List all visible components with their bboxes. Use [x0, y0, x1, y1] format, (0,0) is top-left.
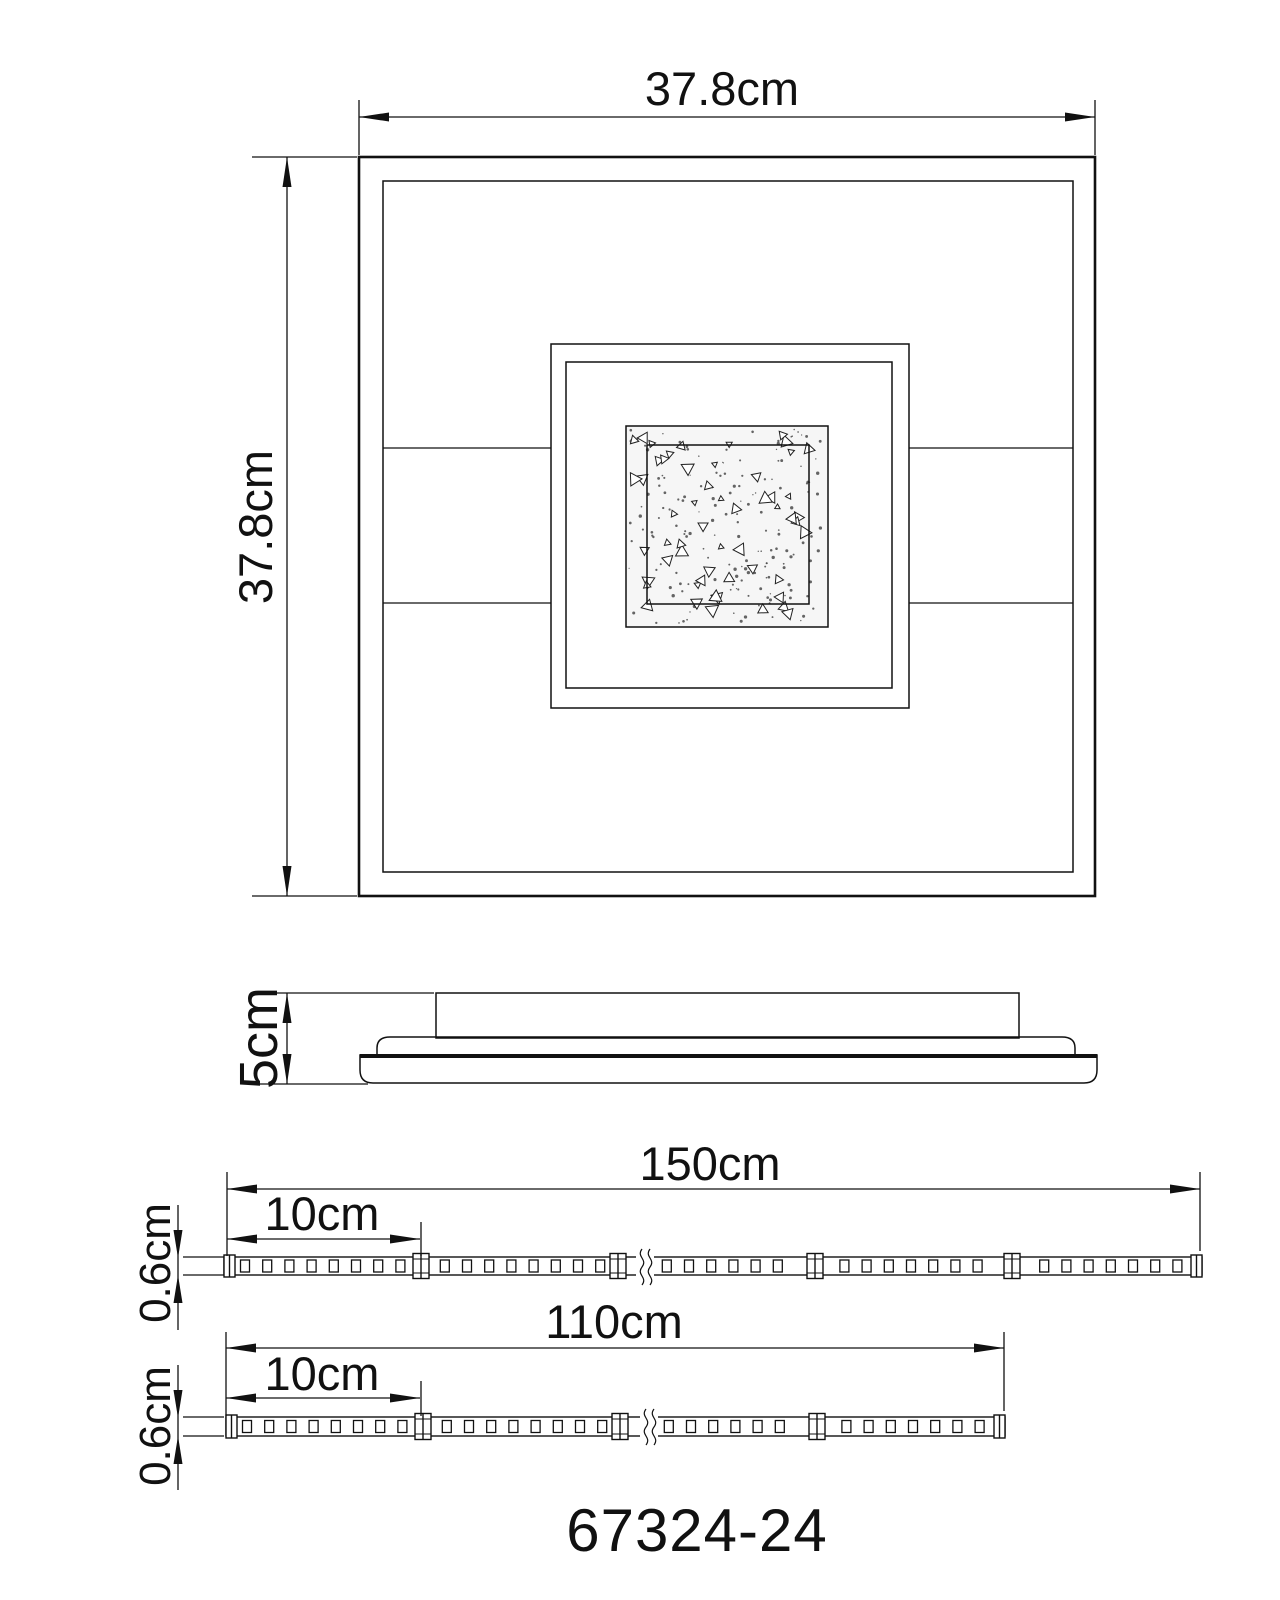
speckle-dot: [817, 549, 820, 552]
speckle-dot: [800, 620, 801, 621]
speckle-dot: [683, 533, 685, 535]
led-square: [265, 1421, 274, 1433]
speckle-dot: [639, 514, 642, 517]
speckle-dot: [739, 459, 741, 461]
speckle-dot: [713, 578, 716, 581]
speckle-dot: [793, 429, 795, 431]
led-square: [485, 1260, 494, 1272]
speckle-dot: [759, 587, 762, 590]
speckle-dot: [723, 462, 724, 463]
speckle-dot: [737, 535, 740, 538]
led-square: [729, 1260, 738, 1272]
speckle-dot: [806, 595, 808, 597]
speckle-dot: [672, 594, 675, 597]
speckle-dot: [765, 530, 767, 532]
led-square: [864, 1421, 873, 1433]
dim-strip1-thickness: 0.6cm: [131, 1203, 224, 1330]
led-square: [553, 1421, 562, 1433]
speckle-dot: [819, 526, 822, 529]
speckle-dot: [740, 501, 741, 502]
arrowhead-right: [1065, 113, 1095, 122]
speckle-dot: [644, 445, 646, 447]
speckle-dot: [714, 534, 716, 536]
speckle-dot: [658, 517, 660, 519]
model-number: 67324-24: [566, 1497, 828, 1564]
speckle-dot: [770, 549, 773, 552]
speckle-dot: [651, 535, 653, 537]
speckle-dot: [630, 429, 633, 432]
dim-strip1-segment: 10cm: [227, 1187, 421, 1256]
speckle-dot: [760, 550, 762, 552]
led-strip-150: [224, 1249, 1202, 1285]
dim-strip2-thickness: 0.6cm: [131, 1365, 224, 1490]
speckle-dot: [642, 529, 644, 531]
speckle-dot: [740, 620, 743, 623]
speckle-dot: [715, 472, 717, 474]
speckle-dot: [631, 540, 633, 542]
speckle-dot: [797, 431, 799, 433]
speckle-dot: [766, 562, 768, 564]
speckle-dot: [651, 531, 654, 534]
led-square: [243, 1421, 252, 1433]
speckle-dot: [758, 605, 760, 607]
arrowhead-left: [227, 1235, 257, 1244]
led-square: [707, 1260, 716, 1272]
speckle-dot: [793, 554, 795, 556]
led-square: [331, 1421, 340, 1433]
led-square: [775, 1421, 784, 1433]
speckle-dot: [679, 582, 682, 585]
speckle-dot: [768, 576, 771, 579]
speckle-dot: [802, 615, 805, 618]
speckle-dot: [777, 533, 780, 536]
led-square: [1084, 1260, 1093, 1272]
speckle-dot: [790, 506, 793, 509]
speckle-dot: [735, 575, 738, 578]
led-square: [551, 1260, 560, 1272]
dim-side-height: 5cm: [229, 987, 434, 1089]
speckle-dot: [655, 569, 657, 571]
led-square: [909, 1421, 918, 1433]
speckle-dot: [733, 612, 735, 614]
speckle-dot: [664, 491, 667, 494]
speckle-dot: [789, 596, 792, 599]
speckle-dot: [738, 485, 740, 487]
speckle-dot: [660, 563, 662, 565]
speckle-dot: [802, 541, 805, 544]
led-square: [931, 1421, 940, 1433]
led-square: [862, 1260, 871, 1272]
speckle-dot: [687, 583, 689, 585]
led-square: [440, 1260, 449, 1272]
speckle-dot: [775, 547, 778, 550]
speckle-dot: [751, 431, 754, 434]
speckle-dot: [800, 465, 802, 467]
led-square: [507, 1260, 516, 1272]
speckle-dot: [663, 477, 665, 479]
speckle-dot: [747, 595, 749, 597]
led-square: [929, 1260, 938, 1272]
led-square: [687, 1421, 696, 1433]
speckle-dot: [658, 485, 660, 487]
speckle-dot: [777, 440, 779, 442]
speckle-dot: [801, 434, 802, 435]
speckle-dot: [669, 586, 672, 589]
speckle-dot: [662, 507, 664, 509]
led-square: [1129, 1260, 1138, 1272]
speckle-dot: [662, 475, 664, 477]
led-square: [354, 1421, 363, 1433]
dim-label-strip2-segment: 10cm: [265, 1347, 380, 1400]
speckle-dot: [730, 589, 732, 591]
led-square: [465, 1421, 474, 1433]
led-square: [1151, 1260, 1160, 1272]
speckle-dot: [711, 519, 714, 522]
speckle-dot: [684, 530, 686, 532]
arrowhead-right: [1170, 1185, 1200, 1194]
dim-label-top-width: 37.8cm: [645, 62, 799, 115]
speckle-dot: [789, 555, 792, 558]
speckle-dot: [729, 492, 732, 495]
led-square: [598, 1421, 607, 1433]
dim-label-strip1-thickness: 0.6cm: [131, 1203, 180, 1323]
speckle-dot: [678, 622, 680, 624]
led-strip-110: [226, 1409, 1005, 1445]
led-square: [576, 1421, 585, 1433]
speckle-dot: [744, 567, 747, 570]
speckle-dot: [732, 584, 734, 586]
led-square: [574, 1260, 583, 1272]
speckle-dot: [737, 521, 739, 523]
speckle-dot: [764, 566, 766, 568]
led-square: [1106, 1260, 1115, 1272]
led-square: [376, 1421, 385, 1433]
dim-label-strip1-length: 150cm: [639, 1137, 780, 1190]
arrowhead-right: [390, 1235, 420, 1244]
speckle-dot: [810, 535, 813, 538]
speckle-dot: [752, 494, 753, 495]
speckle-dot: [766, 577, 768, 579]
led-square: [285, 1260, 294, 1272]
speckle-dot: [683, 495, 686, 498]
break-gap: [640, 1415, 658, 1438]
led-square: [529, 1260, 538, 1272]
top-view: [359, 157, 1095, 896]
speckle-dot: [747, 571, 750, 574]
speckle-dot: [662, 433, 663, 434]
led-square: [509, 1421, 518, 1433]
drawing-canvas: 37.8cm 37.8cm 5cm 150cm: [0, 0, 1280, 1600]
speckle-dot: [714, 504, 717, 507]
led-square: [951, 1260, 960, 1272]
led-square: [442, 1421, 451, 1433]
dim-label-left-height: 37.8cm: [229, 450, 282, 604]
side-view: [360, 993, 1097, 1083]
arrowhead-top: [283, 157, 292, 187]
led-square: [352, 1260, 361, 1272]
led-square: [463, 1260, 472, 1272]
led-square: [975, 1421, 984, 1433]
speckle-dot: [736, 513, 738, 515]
led-square: [773, 1260, 782, 1272]
speckle-dot: [657, 477, 660, 480]
dim-label-strip2-length: 110cm: [545, 1295, 683, 1348]
speckle-dot: [736, 588, 737, 589]
led-square: [329, 1260, 338, 1272]
speckle-dot: [815, 458, 816, 459]
speckle-dot: [703, 548, 705, 550]
led-square: [886, 1421, 895, 1433]
speckle-dot: [783, 566, 786, 569]
speckle-dot: [770, 593, 771, 594]
dim-top-width: 37.8cm: [359, 62, 1095, 155]
led-square: [907, 1260, 916, 1272]
speckle-dot: [675, 572, 677, 574]
led-square: [973, 1260, 982, 1272]
speckle-dot: [737, 588, 739, 590]
arrowhead-right: [974, 1344, 1004, 1353]
speckle-dot: [686, 619, 688, 621]
led-square: [709, 1421, 718, 1433]
speckle-dot: [725, 513, 728, 516]
speckle-dot: [790, 589, 793, 592]
speckle-dot: [698, 455, 700, 457]
led-square: [842, 1421, 851, 1433]
speckle-dot: [769, 598, 772, 601]
dim-label-strip1-segment: 10cm: [265, 1187, 380, 1240]
speckle-dot: [675, 525, 678, 528]
led-square: [751, 1260, 760, 1272]
led-square: [1040, 1260, 1049, 1272]
led-square: [731, 1421, 740, 1433]
led-square: [685, 1260, 694, 1272]
speckle-dot: [681, 590, 683, 592]
arrowhead-left: [359, 113, 389, 122]
led-square: [662, 1260, 671, 1272]
led-square: [287, 1421, 296, 1433]
speckle-dot: [791, 435, 793, 437]
speckle-dot: [776, 449, 777, 450]
speckle-dot: [812, 607, 814, 609]
speckle-dot: [629, 522, 632, 525]
arrowhead-left: [226, 1344, 256, 1353]
led-square: [664, 1421, 673, 1433]
speckle-dot: [682, 620, 685, 623]
speckle-dot: [700, 485, 702, 487]
speckle-dot: [816, 472, 819, 475]
speckle-dot: [629, 568, 630, 569]
led-square: [531, 1421, 540, 1433]
speckle-dot: [725, 449, 727, 451]
arrowhead-left: [226, 1394, 256, 1403]
speckle-dot: [805, 435, 808, 438]
speckle-dot: [764, 478, 766, 480]
profile-diffuser: [377, 1037, 1075, 1055]
speckle-dot: [707, 557, 709, 559]
speckle-dot: [755, 492, 756, 493]
led-square: [884, 1260, 893, 1272]
profile-top-block: [436, 993, 1019, 1038]
led-square: [1062, 1260, 1071, 1272]
speckle-dot: [778, 529, 780, 531]
speckle-dot: [777, 460, 779, 462]
technical-drawing-page: 37.8cm 37.8cm 5cm 150cm: [0, 0, 1280, 1600]
speckle-dot: [747, 503, 750, 506]
dim-label-strip2-thickness: 0.6cm: [131, 1366, 180, 1486]
speckle-dot: [783, 563, 785, 565]
speckle-dot: [819, 440, 822, 443]
speckle-dot: [733, 485, 736, 488]
arrowhead-left: [227, 1185, 257, 1194]
speckle-dot: [741, 566, 743, 568]
speckle-dot: [772, 616, 774, 618]
speckle-dot: [741, 579, 743, 581]
speckle-dot: [682, 499, 685, 502]
speckle-dot: [785, 549, 788, 552]
speckle-dot: [816, 492, 819, 495]
speckle-dot: [719, 475, 721, 477]
led-square: [307, 1260, 316, 1272]
arrowhead-bottom: [283, 866, 292, 896]
speckle-dot: [744, 615, 747, 618]
speckle-dot: [733, 568, 736, 571]
speckle-dot: [641, 506, 643, 508]
led-square: [596, 1260, 605, 1272]
speckle-dot: [668, 508, 670, 510]
speckle-dot: [772, 556, 775, 559]
speckle-dot: [724, 473, 726, 475]
speckle-dot: [687, 448, 690, 451]
speckle-dot: [655, 622, 657, 624]
speckle-dot: [779, 487, 782, 490]
led-square: [309, 1421, 318, 1433]
led-square: [241, 1260, 250, 1272]
led-square: [398, 1421, 407, 1433]
speckle-dot: [758, 551, 759, 552]
speckle-dot: [784, 595, 786, 597]
speckle-dot: [766, 596, 769, 599]
speckle-dot: [686, 445, 689, 448]
speckle-dot: [787, 583, 790, 586]
dim-label-side-height: 5cm: [229, 987, 289, 1089]
speckle-dot: [690, 475, 691, 476]
speckle-dot: [677, 498, 679, 500]
led-square: [263, 1260, 272, 1272]
speckle-dot: [745, 559, 748, 562]
speckle-dot: [688, 532, 691, 535]
arrowhead-right: [390, 1394, 420, 1403]
speckle-dot: [632, 611, 635, 614]
led-square: [753, 1421, 762, 1433]
speckle-dot: [712, 497, 715, 500]
speckle-dot: [685, 535, 688, 538]
led-square: [487, 1421, 496, 1433]
speckle-dot: [728, 564, 730, 566]
profile-base: [360, 1055, 1097, 1083]
led-square: [374, 1260, 383, 1272]
led-square: [953, 1421, 962, 1433]
speckle-dot: [760, 511, 763, 514]
led-square: [1173, 1260, 1182, 1272]
led-square: [840, 1260, 849, 1272]
dim-left-height: 37.8cm: [229, 157, 357, 896]
speckle-dot: [771, 479, 773, 481]
speckle-dot: [698, 511, 699, 512]
speckle-dot: [689, 611, 690, 612]
crystal-panel-background: [626, 426, 828, 627]
dim-strip2-segment: 10cm: [226, 1347, 421, 1416]
speckle-dot: [780, 459, 783, 462]
speckle-dot: [741, 475, 743, 477]
led-square: [396, 1260, 405, 1272]
